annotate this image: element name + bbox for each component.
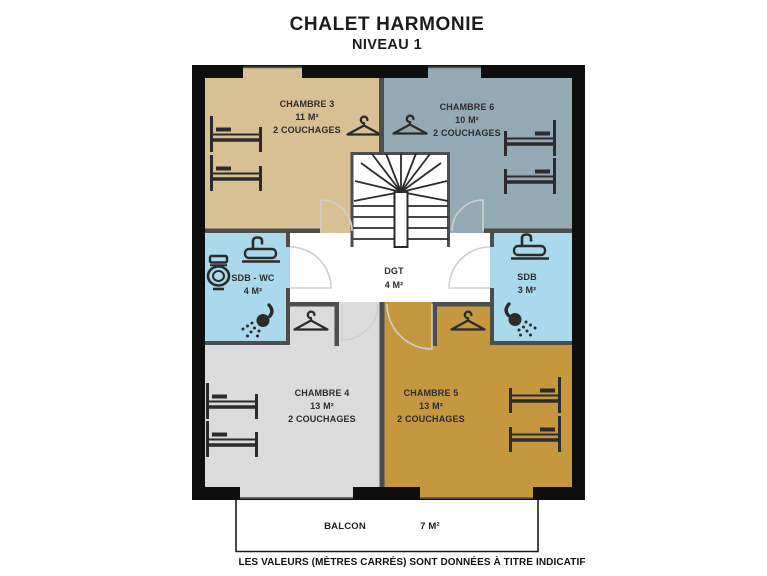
room-chambre-3-name: CHAMBRE 3 — [280, 99, 335, 109]
room-sdb-wc-name: SDB - WC — [231, 273, 275, 283]
footnote: LES VALEURS (MÈTRES CARRÉS) SONT DONNÉES… — [238, 555, 585, 568]
balcony-name: BALCON — [324, 521, 366, 532]
balcony: BALCON 7 M² — [236, 500, 538, 552]
room-chambre-5-capacity: 2 COUCHAGES — [397, 414, 465, 424]
room-chambre-3-area: 11 M² — [295, 112, 318, 122]
room-chambre-6-name: CHAMBRE 6 — [440, 102, 495, 112]
room-sdb-wc: SDB - WC 4 M² — [205, 233, 290, 345]
room-chambre-4-name: CHAMBRE 4 — [295, 388, 350, 398]
room-sdb-area: 3 M² — [518, 285, 537, 295]
floor-plan-canvas: CHAMBRE 3 11 M² 2 COUCHAGES CHAMBRE 6 10… — [0, 0, 767, 576]
balcony-area: 7 M² — [420, 521, 440, 532]
window-chambre-6 — [428, 66, 481, 78]
balcony-door-chambre-5 — [420, 487, 533, 499]
room-chambre-6-area: 10 M² — [455, 115, 479, 125]
room-sdb-name: SDB — [517, 272, 537, 282]
corridor-dgt-name: DGT — [384, 266, 404, 276]
room-sdb-wc-area: 4 M² — [244, 286, 263, 296]
page-title: CHALET HARMONIE — [290, 14, 485, 35]
room-chambre-3-capacity: 2 COUCHAGES — [273, 125, 341, 135]
room-chambre-4-area: 13 M² — [310, 401, 334, 411]
stairs-icon — [352, 152, 450, 247]
balcony-door-chambre-4 — [240, 487, 353, 499]
page-subtitle: NIVEAU 1 — [352, 37, 422, 53]
floor-plan-page: CHAMBRE 3 11 M² 2 COUCHAGES CHAMBRE 6 10… — [0, 0, 767, 576]
corridor-dgt-area: 4 M² — [385, 280, 404, 290]
room-chambre-5-area: 13 M² — [419, 401, 443, 411]
room-sdb: SDB 3 M² — [490, 233, 572, 345]
room-chambre-5-name: CHAMBRE 5 — [404, 388, 459, 398]
room-chambre-4-capacity: 2 COUCHAGES — [288, 414, 356, 424]
window-chambre-3 — [243, 66, 302, 78]
room-chambre-6-capacity: 2 COUCHAGES — [433, 128, 501, 138]
